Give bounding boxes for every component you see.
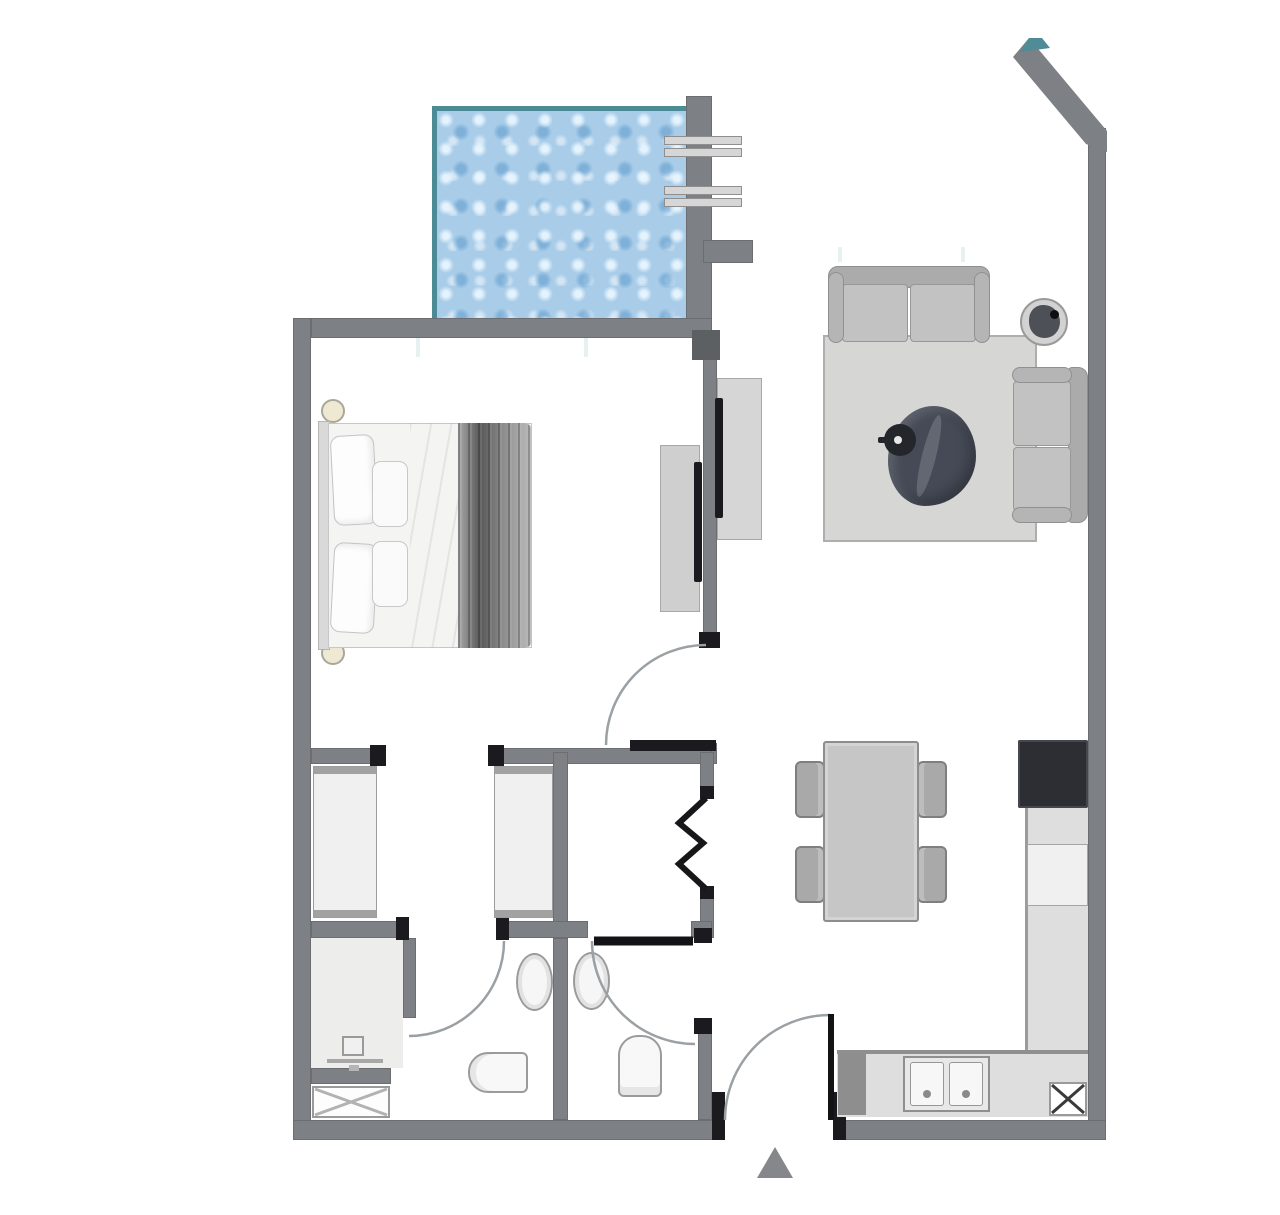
pool-ladder-icon xyxy=(664,186,742,195)
sink-basin xyxy=(949,1062,983,1106)
door-jamb xyxy=(700,886,714,899)
glass-panel-gap xyxy=(416,337,420,357)
pool-water xyxy=(432,106,693,323)
shelf-line xyxy=(327,1059,383,1063)
outer-wall-bottom-left xyxy=(293,1120,714,1140)
bath-pr-divider xyxy=(553,938,568,1120)
cooktop xyxy=(1027,844,1088,906)
refrigerator xyxy=(1018,740,1088,808)
sofa-armrest xyxy=(1012,507,1072,523)
wardrobe xyxy=(494,766,553,918)
pool-ladder-icon xyxy=(664,148,742,157)
door-jamb xyxy=(694,928,712,943)
pool-right-wall xyxy=(686,96,712,332)
toilet xyxy=(468,1052,528,1093)
faucet-icon xyxy=(923,1090,931,1098)
sofa-cushion xyxy=(842,284,908,342)
kitchen-sink xyxy=(903,1056,990,1112)
sofa-cushion xyxy=(1013,381,1071,446)
sofa-armrest xyxy=(1012,367,1072,383)
table-lamp-icon xyxy=(321,399,345,423)
door-jamb xyxy=(694,1018,712,1034)
plant-dot xyxy=(1050,310,1059,319)
faucet-icon xyxy=(962,1090,970,1098)
sofa-cushion xyxy=(910,284,976,342)
dining-chair xyxy=(917,846,947,903)
pool-deck-bottom-wall xyxy=(311,318,712,338)
wardrobe-rail xyxy=(314,910,376,917)
dining-chair xyxy=(795,846,825,903)
kettle-spout xyxy=(878,437,888,443)
shelf-foot xyxy=(349,1065,359,1071)
service-shaft xyxy=(312,1086,390,1118)
bedroom-south-wall-west xyxy=(311,748,373,764)
hanging-clothes xyxy=(314,767,341,902)
entrance-arrow-icon xyxy=(757,1147,793,1178)
wardrobe-rail xyxy=(495,910,552,917)
outer-wall-bottom-right xyxy=(836,1120,1106,1140)
balcony-living-wall-segment xyxy=(703,240,753,263)
glass-panel-gap xyxy=(584,337,588,357)
door-swing-arc xyxy=(725,1015,830,1120)
wardrobe-rail xyxy=(495,767,552,774)
washbasin xyxy=(573,952,610,1010)
sofa-armrest xyxy=(828,272,844,343)
glass-panel-gap xyxy=(838,247,842,262)
sofa-backrest xyxy=(1068,367,1088,523)
dining-table xyxy=(823,741,919,922)
tv-icon xyxy=(694,462,702,582)
bed-duvet xyxy=(410,423,462,648)
door-swing-arc xyxy=(606,645,706,745)
door-lintel xyxy=(630,740,716,751)
door-jamb xyxy=(699,632,720,648)
sink-basin xyxy=(910,1062,944,1106)
door-jamb xyxy=(396,917,409,940)
bed-blanket xyxy=(458,423,532,648)
sofa-two-seater xyxy=(1008,367,1088,523)
bed-pillow xyxy=(372,461,408,527)
wardrobe xyxy=(313,766,377,918)
tv-icon xyxy=(715,398,723,518)
dining-chair xyxy=(795,761,825,818)
door-jamb xyxy=(712,1092,725,1140)
washbasin xyxy=(516,953,553,1011)
outer-wall-right xyxy=(1088,128,1106,1140)
outer-wall-left xyxy=(293,318,311,1140)
floor-plan: 2.77 x 0.65 POOL 2.75 x 2.05 BALCONY 3.6… xyxy=(0,0,1280,1215)
wall-corner-block xyxy=(692,330,720,360)
tv-console xyxy=(717,378,762,540)
marble-streak xyxy=(912,414,946,499)
chamfer-railing xyxy=(1020,38,1050,52)
pr-east-wall xyxy=(698,1032,712,1120)
potted-plant-icon xyxy=(1020,298,1068,346)
dishwasher xyxy=(838,1054,866,1115)
washing-machine-icon xyxy=(342,1036,364,1056)
hanging-clothes xyxy=(495,902,519,1037)
hanging-clothes xyxy=(314,902,341,1037)
kettle-icon xyxy=(884,424,916,456)
sofa-cushion xyxy=(1013,447,1071,511)
pool-deck-floor xyxy=(0,0,287,262)
dining-chair xyxy=(917,761,947,818)
glass-panel-gap xyxy=(961,247,965,262)
dressing-store-divider xyxy=(553,752,568,938)
door-jamb xyxy=(700,786,714,799)
toilet xyxy=(618,1035,662,1097)
service-shaft xyxy=(1049,1082,1087,1116)
sofa-armrest xyxy=(974,272,990,343)
door-jamb xyxy=(370,745,386,766)
bath-door-leaf xyxy=(403,938,416,1018)
door-swing-arc xyxy=(409,941,504,1036)
sofa xyxy=(828,266,990,345)
bed-pillow xyxy=(372,541,408,607)
hanging-clothes xyxy=(495,767,519,902)
bifold-door xyxy=(679,798,706,889)
door-jamb xyxy=(488,745,504,766)
double-bed xyxy=(318,421,532,650)
pool-ladder-icon xyxy=(664,136,742,145)
kettle-lid xyxy=(894,436,902,444)
pool-ladder-icon xyxy=(664,198,742,207)
wardrobe-rail xyxy=(314,767,376,774)
